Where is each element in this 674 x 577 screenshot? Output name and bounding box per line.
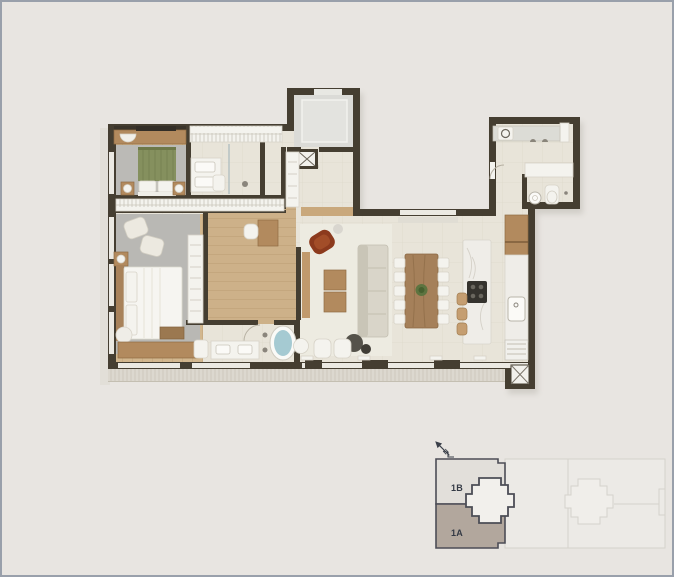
vanity	[525, 163, 573, 177]
corridor-threshold	[301, 207, 353, 216]
bathtub	[270, 326, 296, 360]
sink	[238, 345, 252, 354]
balcony-deck	[108, 369, 535, 381]
dining-area	[394, 254, 449, 328]
walkin-closet-column	[188, 235, 203, 323]
coffee-table	[361, 344, 371, 354]
wood-panel	[302, 252, 310, 318]
floorplan-svg: 1B 1A N	[2, 2, 674, 577]
tv-stand	[160, 327, 184, 339]
key-plan: 1B 1A N	[433, 439, 665, 548]
sink	[216, 345, 230, 354]
shower-control-icon	[263, 348, 268, 353]
kitchen-counter	[505, 215, 528, 360]
building-core	[466, 478, 514, 523]
closet-top	[190, 126, 282, 142]
kitchen-sink	[508, 297, 525, 321]
hall-floor	[203, 199, 296, 324]
shower-head-icon	[242, 181, 248, 187]
keyplan-faint-building	[505, 459, 665, 548]
armchair	[334, 339, 351, 358]
pouf	[116, 327, 132, 343]
unit-1a-label: 1A	[451, 528, 463, 538]
ac-unit	[505, 340, 528, 360]
lamp	[175, 185, 183, 193]
elevator-mat	[314, 89, 342, 95]
unit-1b-label: 1B	[451, 483, 463, 493]
lamp	[117, 255, 125, 263]
cooktop	[467, 281, 487, 303]
armchair	[314, 339, 331, 358]
corridor-cabinet	[286, 152, 299, 207]
side-table	[333, 224, 343, 234]
shaft-x-icon	[511, 365, 529, 384]
floorplan-screenshot: 1B 1A N	[0, 0, 674, 577]
closet-divider	[116, 199, 284, 211]
toilet	[213, 175, 225, 191]
shower-head-icon	[564, 191, 568, 195]
sofa	[358, 245, 388, 337]
tv-console	[136, 126, 176, 131]
desk-chair	[244, 224, 258, 239]
round-side-table	[294, 339, 309, 354]
shower-control-icon	[263, 333, 268, 338]
laundry-room	[493, 126, 560, 142]
lamp	[124, 185, 132, 193]
bar-stools	[457, 293, 467, 335]
toilet	[194, 340, 208, 358]
floor-plan	[100, 88, 583, 394]
console	[324, 270, 346, 290]
sink	[195, 162, 215, 172]
console	[324, 292, 346, 312]
north-arrow-icon: N	[433, 439, 454, 458]
bench-sideboard	[118, 342, 198, 358]
sink	[195, 177, 215, 187]
round-basin	[529, 192, 541, 204]
